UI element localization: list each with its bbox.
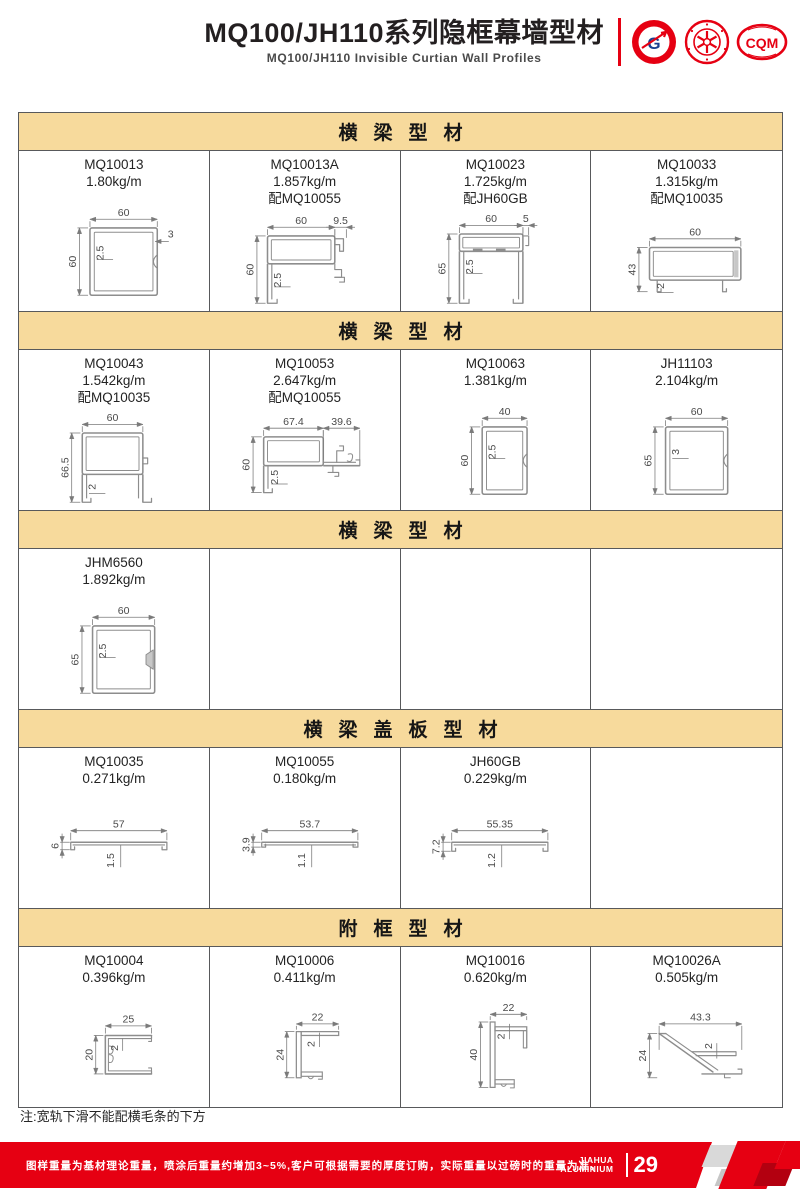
profile-code: MQ10013 — [84, 157, 143, 174]
svg-text:2.5: 2.5 — [97, 643, 109, 658]
profile-cell: JH60GB0.229kg/m1.255.357.2 — [401, 748, 592, 908]
profile-weight: 1.892kg/m — [82, 572, 145, 589]
profile-code: MQ10004 — [82, 953, 145, 970]
profile-cell: MQ100631.381kg/m40602.5 — [401, 350, 592, 510]
profile-match: 配MQ10035 — [650, 191, 723, 208]
svg-text:60: 60 — [690, 406, 702, 418]
profile-row: MQ100040.396kg/m25202MQ100060.411kg/m222… — [19, 947, 782, 1107]
profile-cell: MQ100550.180kg/m1.153.73.9 — [210, 748, 401, 908]
profile-drawing-MQ10026A: 43.3242 — [594, 997, 780, 1097]
profile-weight: 1.857kg/m — [268, 174, 341, 191]
svg-text:20: 20 — [83, 1049, 95, 1061]
svg-text:39.6: 39.6 — [331, 416, 352, 428]
profile-weight: 1.80kg/m — [84, 174, 143, 191]
profile-code: JH60GB — [464, 754, 527, 771]
profile-cell — [591, 549, 782, 709]
profile-cell: MQ100431.542kg/m配MQ100356066.52 — [19, 350, 210, 510]
svg-text:3: 3 — [670, 449, 682, 455]
svg-text:60: 60 — [689, 227, 701, 239]
profile-drawing-MQ10023: 605652.5 — [402, 209, 588, 309]
profile-code: MQ10063 — [464, 356, 527, 373]
profile-weight: 1.315kg/m — [650, 174, 723, 191]
certification-logos: G CQM — [630, 18, 788, 66]
star-certification-seal-icon — [684, 19, 730, 65]
svg-text:25: 25 — [122, 1013, 134, 1025]
profile-code: MQ10033 — [650, 157, 723, 174]
svg-text:24: 24 — [274, 1049, 286, 1061]
svg-text:2.5: 2.5 — [487, 444, 499, 459]
profile-label: MQ100060.411kg/m — [274, 953, 336, 987]
profile-label: MQ100532.647kg/m配MQ10055 — [268, 356, 341, 407]
profile-cell: MQ10026A0.505kg/m43.3242 — [591, 947, 782, 1107]
profile-label: MQ100631.381kg/m — [464, 356, 527, 390]
profile-label: MQ10026A0.505kg/m — [652, 953, 720, 987]
svg-text:3: 3 — [168, 228, 174, 240]
page-title: MQ100/JH110系列隐框幕墙型材 — [204, 19, 604, 47]
profile-drawing-JH60GB: 1.255.357.2 — [402, 798, 588, 898]
profile-drawing-MQ10063: 40602.5 — [402, 400, 588, 500]
svg-text:2: 2 — [655, 283, 667, 289]
section-title: 横梁型材 — [322, 516, 478, 543]
svg-text:60: 60 — [486, 213, 498, 225]
svg-text:60: 60 — [295, 215, 307, 227]
svg-text:1.1: 1.1 — [296, 853, 308, 868]
page-subtitle: MQ100/JH110 Invisible Curtian Wall Profi… — [204, 51, 604, 65]
profile-drawing-JH11103: 60653 — [594, 400, 780, 500]
svg-text:67.4: 67.4 — [283, 416, 304, 428]
profile-match: 配JH60GB — [463, 191, 528, 208]
profile-cell — [210, 549, 401, 709]
svg-text:2: 2 — [703, 1043, 715, 1049]
profile-code: MQ10006 — [274, 953, 336, 970]
svg-text:65: 65 — [69, 653, 81, 665]
profile-drawing-MQ10013: 60602.53 — [21, 201, 207, 301]
footnote-text: 注:宽轨下滑不能配横毛条的下方 — [20, 1106, 206, 1125]
profile-table: 横梁型材MQ100131.80kg/m60602.53MQ10013A1.857… — [18, 112, 783, 1108]
profile-code: MQ10016 — [464, 953, 527, 970]
svg-text:60: 60 — [244, 264, 256, 276]
profile-weight: 0.620kg/m — [464, 970, 527, 987]
profile-label: MQ100431.542kg/m配MQ10035 — [77, 356, 150, 407]
svg-text:7.2: 7.2 — [431, 839, 443, 854]
svg-text:2: 2 — [109, 1045, 121, 1051]
profile-label: MQ100040.396kg/m — [82, 953, 145, 987]
svg-text:6: 6 — [50, 843, 62, 849]
svg-text:60: 60 — [460, 454, 472, 466]
brand-separator — [626, 1153, 628, 1177]
profile-weight: 1.725kg/m — [463, 174, 528, 191]
profile-drawing-MQ10013A: 609.5602.5 — [212, 209, 398, 309]
profile-cell: MQ100532.647kg/m配MQ1005567.439.6602.5 — [210, 350, 401, 510]
profile-drawing-MQ10053: 67.439.6602.5 — [212, 408, 398, 508]
profile-code: MQ10013A — [268, 157, 341, 174]
svg-text:2.5: 2.5 — [464, 260, 476, 275]
svg-text:55.35: 55.35 — [487, 818, 514, 830]
svg-text:22: 22 — [311, 1011, 323, 1023]
profile-code: MQ10043 — [77, 356, 150, 373]
profile-code: MQ10035 — [82, 754, 145, 771]
profile-row: MQ100350.271kg/m1.5576MQ100550.180kg/m1.… — [19, 748, 782, 908]
profile-label: MQ100331.315kg/m配MQ10035 — [650, 157, 723, 208]
svg-text:60: 60 — [107, 412, 119, 424]
profile-row: MQ100431.542kg/m配MQ100356066.52MQ100532.… — [19, 350, 782, 510]
svg-text:5: 5 — [523, 213, 529, 225]
gb-certification-logo-icon: G — [630, 18, 678, 66]
footer-bar: 图样重量为基材理论重量，喷涂后重量约增加3~5%,客户可根据需要的厚度订购，实际… — [0, 1142, 712, 1188]
profile-weight: 2.104kg/m — [655, 373, 718, 390]
brand-line2: ALUMINIUM — [560, 1165, 613, 1174]
svg-text:2.5: 2.5 — [269, 470, 281, 485]
profile-weight: 0.229kg/m — [464, 771, 527, 788]
svg-text:43.3: 43.3 — [690, 1011, 711, 1023]
profile-weight: 0.411kg/m — [274, 970, 336, 987]
profile-label: MQ100550.180kg/m — [273, 754, 336, 788]
profile-weight: 0.396kg/m — [82, 970, 145, 987]
section-title: 附框型材 — [322, 914, 478, 941]
profile-row: MQ100131.80kg/m60602.53MQ10013A1.857kg/m… — [19, 151, 782, 311]
profile-code: MQ10026A — [652, 953, 720, 970]
svg-text:CQM: CQM — [746, 35, 779, 51]
profile-label: MQ100160.620kg/m — [464, 953, 527, 987]
profile-code: JH11103 — [655, 356, 718, 373]
profile-match: 配MQ10055 — [268, 191, 341, 208]
profile-weight: 0.271kg/m — [82, 771, 145, 788]
profile-code: MQ10023 — [463, 157, 528, 174]
profile-cell: MQ100231.725kg/m配JH60GB605652.5 — [401, 151, 592, 311]
section-title-band: 横梁型材 — [19, 113, 782, 151]
profile-label: JH111032.104kg/m — [655, 356, 718, 390]
svg-text:53.7: 53.7 — [299, 818, 320, 830]
profile-cell: MQ100060.411kg/m22242 — [210, 947, 401, 1107]
profile-cell: MQ100350.271kg/m1.5576 — [19, 748, 210, 908]
svg-text:65: 65 — [437, 263, 449, 275]
profile-match: 配MQ10055 — [268, 390, 341, 407]
profile-label: MQ100231.725kg/m配JH60GB — [463, 157, 528, 208]
profile-weight: 1.381kg/m — [464, 373, 527, 390]
footer-brand: JIAHUA ALUMINIUM 29 — [560, 1152, 658, 1178]
profile-label: JH60GB0.229kg/m — [464, 754, 527, 788]
profile-drawing-JHM6560: 60652.5 — [21, 599, 207, 699]
svg-text:22: 22 — [503, 1002, 515, 1014]
profile-cell: JH111032.104kg/m60653 — [591, 350, 782, 510]
profile-weight: 0.505kg/m — [652, 970, 720, 987]
svg-text:66.5: 66.5 — [59, 458, 71, 479]
profile-drawing-MQ10043: 6066.52 — [21, 408, 207, 508]
section-title: 横梁型材 — [322, 317, 478, 344]
section-title-band: 横梁型材 — [19, 510, 782, 549]
profile-row: JHM65601.892kg/m60652.5 — [19, 549, 782, 709]
profile-cell — [591, 748, 782, 908]
profile-drawing-MQ10033: 60432 — [594, 209, 780, 309]
profile-cell: JHM65601.892kg/m60652.5 — [19, 549, 210, 709]
section-title-band: 附框型材 — [19, 908, 782, 947]
brand-name: JIAHUA ALUMINIUM — [560, 1156, 613, 1175]
svg-text:2: 2 — [496, 1033, 508, 1039]
profile-code: MQ10055 — [273, 754, 336, 771]
svg-text:60: 60 — [240, 459, 252, 471]
section-title-band: 横梁盖板型材 — [19, 709, 782, 748]
page-header: MQ100/JH110系列隐框幕墙型材 MQ100/JH110 Invisibl… — [204, 18, 788, 66]
footer-decoration — [698, 1142, 800, 1188]
profile-weight: 2.647kg/m — [268, 373, 341, 390]
svg-text:60: 60 — [118, 207, 130, 219]
svg-text:1.5: 1.5 — [105, 853, 117, 868]
section-title-band: 横梁型材 — [19, 311, 782, 350]
profile-cell: MQ100160.620kg/m22402 — [401, 947, 592, 1107]
svg-text:57: 57 — [113, 818, 125, 830]
profile-drawing-MQ10004: 25202 — [21, 997, 207, 1097]
footer-disclaimer: 图样重量为基材理论重量，喷涂后重量约增加3~5%,客户可根据需要的厚度订购，实际… — [0, 1158, 602, 1173]
svg-text:60: 60 — [118, 605, 130, 617]
svg-text:2: 2 — [305, 1041, 317, 1047]
profile-code: JHM6560 — [82, 555, 145, 572]
profile-drawing-MQ10006: 22242 — [212, 997, 398, 1097]
profile-label: JHM65601.892kg/m — [82, 555, 145, 589]
page-number: 29 — [634, 1152, 658, 1178]
svg-text:43: 43 — [626, 264, 638, 276]
svg-text:65: 65 — [642, 454, 654, 466]
profile-drawing-MQ10035: 1.5576 — [21, 798, 207, 898]
svg-text:40: 40 — [469, 1049, 481, 1061]
profile-label: MQ10013A1.857kg/m配MQ10055 — [268, 157, 341, 208]
profile-weight: 0.180kg/m — [273, 771, 336, 788]
svg-text:3.9: 3.9 — [240, 837, 252, 852]
profile-cell: MQ10013A1.857kg/m配MQ10055609.5602.5 — [210, 151, 401, 311]
profile-cell: MQ100331.315kg/m配MQ1003560432 — [591, 151, 782, 311]
profile-cell — [401, 549, 592, 709]
profile-label: MQ100131.80kg/m — [84, 157, 143, 191]
profile-label: MQ100350.271kg/m — [82, 754, 145, 788]
section-title: 横梁盖板型材 — [287, 715, 513, 742]
cqm-certification-logo-icon: CQM — [736, 20, 788, 64]
svg-text:1.2: 1.2 — [486, 853, 498, 868]
profile-cell: MQ100131.80kg/m60602.53 — [19, 151, 210, 311]
profile-weight: 1.542kg/m — [77, 373, 150, 390]
title-block: MQ100/JH110系列隐框幕墙型材 MQ100/JH110 Invisibl… — [204, 19, 604, 64]
profile-drawing-MQ10055: 1.153.73.9 — [212, 798, 398, 898]
svg-text:2.5: 2.5 — [272, 273, 284, 288]
svg-text:40: 40 — [499, 406, 511, 418]
svg-text:9.5: 9.5 — [333, 215, 348, 227]
profile-match: 配MQ10035 — [77, 390, 150, 407]
header-divider — [618, 18, 621, 66]
svg-text:60: 60 — [67, 255, 79, 267]
profile-cell: MQ100040.396kg/m25202 — [19, 947, 210, 1107]
profile-drawing-MQ10016: 22402 — [402, 997, 588, 1097]
section-title: 横梁型材 — [322, 118, 478, 145]
svg-text:2: 2 — [87, 484, 99, 490]
profile-code: MQ10053 — [268, 356, 341, 373]
svg-text:2.5: 2.5 — [94, 245, 106, 260]
svg-text:24: 24 — [637, 1050, 649, 1062]
